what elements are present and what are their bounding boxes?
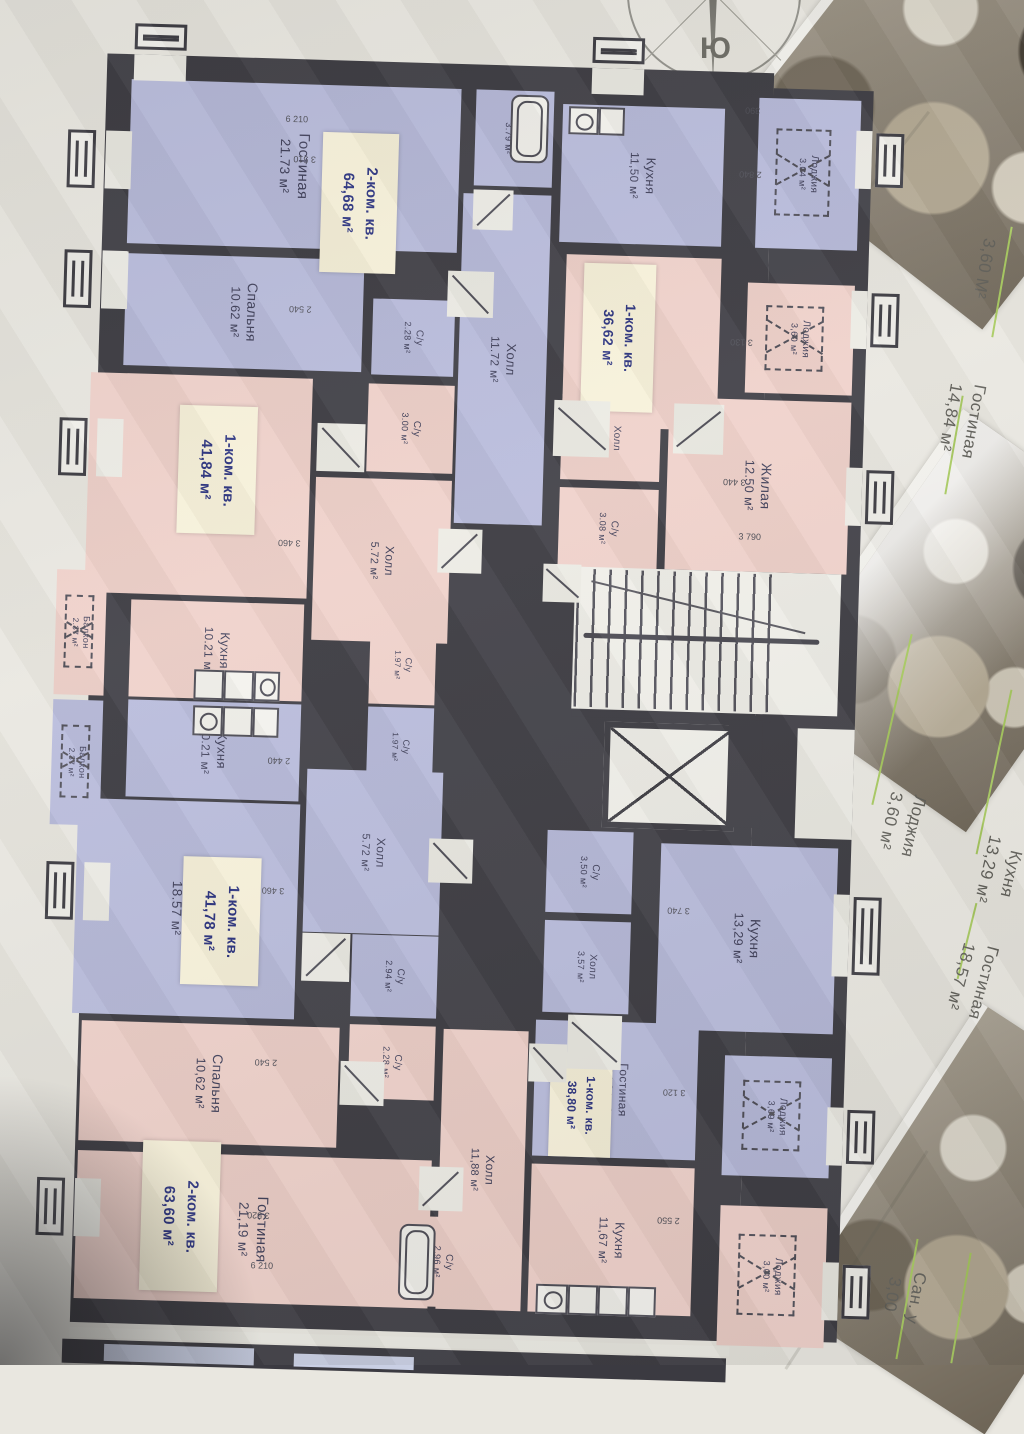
dimension-text: 3 520: [247, 1210, 270, 1221]
room-label: Холл11.72 м²: [486, 335, 519, 383]
stove-icon: [567, 1285, 598, 1316]
window-icon: [592, 37, 645, 65]
room-label: С/у3.08 м²: [595, 512, 621, 545]
apartment-label-text: 1-ком. кв.38,80 м²: [561, 1075, 600, 1135]
room-label: Кухня13,29 м²: [729, 913, 765, 965]
room-Лоджия: Лоджия3,00 м²: [716, 1205, 827, 1348]
window-gap: [831, 894, 849, 976]
dimension-text: 390: [745, 105, 760, 115]
window-gap: [83, 862, 111, 921]
dimension-text: 6 210: [250, 1260, 273, 1271]
bathtub-icon: [509, 94, 549, 163]
room-С/у: С/у3,50 м²: [545, 830, 633, 915]
window-icon: [63, 249, 93, 308]
apartment-label-apt-2k-6360: 2-ком. кв.63,60 м²: [139, 1140, 221, 1292]
room-label: Холл5.72 м²: [358, 833, 389, 872]
room-Кухня: Кухня13,29 м²: [656, 843, 838, 1034]
bathtub-icon: [398, 1224, 436, 1301]
window-gap: [104, 130, 132, 189]
door-swing-icon: [437, 528, 482, 573]
room-Балкон: Балкон2.37 м²: [50, 699, 104, 825]
door-swing-icon: [673, 403, 724, 454]
room-label: Гостиная21.73 м²: [275, 132, 314, 199]
door-swing-icon: [528, 1043, 567, 1082]
floor-plan: Гостиная21.73 м²Спальня10.62 м²Холл11.72…: [34, 49, 879, 1387]
window-icon: [45, 861, 75, 920]
side-label: Гостиная18,57 м²: [939, 937, 1004, 1022]
dimension-text: 3 120: [663, 1087, 686, 1098]
corridor-notch: [795, 728, 855, 840]
door-swing-icon: [301, 933, 350, 982]
window-icon: [58, 417, 88, 476]
balcony-dash-icon: [774, 128, 832, 217]
room-Лоджия: Лоджия3.04 м²: [755, 98, 861, 251]
room-label: С/у3,50 м²: [577, 856, 603, 889]
window-icon: [846, 1110, 876, 1165]
room-Холл: Холл5.72 м²: [303, 769, 444, 936]
room-label: С/у1.97 м²: [391, 650, 414, 680]
apartment-label-apt-1k-3662: 1-ком. кв.36,62 м²: [580, 263, 656, 413]
window-icon: [851, 897, 881, 976]
room-Холл: Холл5.72 м²: [311, 477, 452, 644]
room-label: С/у3.00 м²: [398, 412, 424, 445]
room-label: Гостиная21,19 м²: [233, 1196, 272, 1263]
room-label: Кухня11,67 м²: [594, 1216, 627, 1264]
balcony-dash-icon: [736, 1234, 796, 1317]
balcony-dash-icon: [741, 1080, 801, 1152]
room-Лоджия: Лоджия3,60 м²: [745, 283, 855, 396]
door-swing-icon: [472, 189, 513, 230]
dimension-text: 2 540: [254, 1057, 277, 1068]
window-gap: [850, 291, 868, 349]
window-gap: [855, 131, 873, 189]
dimension-text: 3 440: [723, 477, 746, 488]
sink-icon: [192, 705, 223, 736]
room-С/у: С/у3.00 м²: [366, 383, 455, 474]
room-Холл: Холл3,57 м²: [542, 920, 631, 1015]
window-icon: [841, 1265, 871, 1320]
window-icon: [67, 129, 97, 188]
room-label: Холл11,88 м²: [467, 1148, 498, 1192]
elevator-shaft-wall: [726, 719, 763, 828]
dimension-text: 2 550: [657, 1215, 680, 1226]
side-label: Лоджия3,60 м²: [871, 787, 932, 859]
stove-icon: [627, 1286, 656, 1317]
dimension-text: 3 130: [730, 337, 753, 348]
window-gap: [821, 1262, 839, 1320]
room-label: Холл5.72 м²: [366, 541, 397, 580]
dimension-text: 6 210: [285, 114, 308, 125]
dimension-text: 2 440: [267, 756, 290, 767]
door-swing-icon: [567, 1015, 623, 1071]
door-swing-icon: [447, 271, 494, 318]
apartment-label-text: 2-ком. кв.64,68 м²: [335, 166, 384, 240]
dimension-text: 3 740: [667, 905, 690, 916]
window-gap: [826, 1107, 844, 1165]
stove-icon: [222, 706, 253, 737]
room-С/у: С/у2.94 м²: [350, 934, 438, 1019]
stove-icon: [193, 669, 224, 700]
door-swing-icon: [553, 400, 611, 458]
room-С/у: С/у1.97 м²: [368, 625, 436, 706]
elevator: [602, 722, 737, 832]
room-Балкон: Балкон2.37 м²: [53, 569, 107, 695]
floor-plan-photo: Ю Гостиная12,50 м²3,60 М²Гостиная14,84 м…: [0, 0, 1024, 1365]
side-label-text: Сан. у3,00: [876, 1266, 932, 1326]
stove-icon: [597, 1286, 628, 1317]
room-С/у: С/у1.97 м²: [366, 706, 434, 787]
room-С/у: С/у3.08 м²: [557, 487, 658, 570]
apartment-label-text: 1-ком. кв.36,62 м²: [596, 303, 641, 373]
dimension-text: 3 510: [293, 154, 316, 165]
apartment-label-apt-1k-4178: 1-ком. кв.41,78 м²: [180, 856, 262, 986]
window-icon: [35, 1177, 65, 1236]
sink-icon: [253, 671, 280, 702]
side-label: 3,60 М²: [967, 236, 1024, 304]
stove-icon: [223, 670, 254, 701]
window-gap: [845, 468, 863, 526]
window-icon: [865, 470, 895, 525]
dimension-text: 2 840: [739, 169, 762, 180]
window-icon: [875, 133, 905, 188]
room-Холл: Холл11.72 м²: [454, 193, 552, 525]
door-swing-icon: [339, 1061, 384, 1106]
room-label: Спальня10.62 м²: [226, 283, 262, 343]
sink-icon: [535, 1284, 568, 1315]
window-gap: [134, 54, 187, 82]
balcony-dash-icon: [764, 305, 824, 372]
room-label: С/у1.97 м²: [389, 732, 412, 762]
sink-icon: [568, 106, 599, 135]
dimension-text: 3 790: [738, 531, 761, 542]
window-gap: [73, 1178, 101, 1237]
window-icon: [870, 293, 900, 348]
room-label: Спальня10,62 м²: [191, 1054, 227, 1114]
room-С/у: С/у2.28 м²: [371, 298, 455, 376]
apartment-label-apt-1k-4184: 1-ком. кв.41,84 м²: [176, 405, 258, 535]
room-Гостиная: Гостиная21.73 м²: [127, 79, 462, 253]
room-label: С/у2.28 м²: [400, 321, 426, 354]
room-Лоджия: Лоджия3,69 м²: [721, 1055, 832, 1178]
side-label-text: Лоджия3,60 м²: [871, 787, 932, 859]
room-Гостиная: Гостиная21,19 м²: [74, 1150, 432, 1308]
door-swing-icon: [418, 1166, 463, 1211]
balcony-dash-icon: [63, 594, 94, 668]
apartment-label-text: 1-ком. кв.41,78 м²: [196, 884, 245, 958]
room-label: Холл3,57 м²: [574, 951, 600, 984]
room-label: Кухня10.21 м²: [200, 626, 233, 675]
window-gap: [592, 68, 645, 96]
apartment-label-text: 1-ком. кв.41,84 м²: [193, 433, 242, 507]
dimension-text: 2 540: [289, 304, 312, 315]
apartment-label-apt-2k-6468: 2-ком. кв.64,68 м²: [319, 132, 399, 274]
door-swing-icon: [542, 564, 581, 603]
stove-icon: [598, 107, 625, 136]
window-gap: [96, 418, 124, 477]
room-label: Кухня11,50 м²: [625, 152, 658, 200]
stove-icon: [252, 707, 279, 738]
side-label-text: Гостиная18,57 м²: [939, 937, 1004, 1022]
room-Спальня: Спальня10,62 м²: [78, 1020, 339, 1148]
window-icon: [135, 23, 188, 51]
apartment-label-text: 2-ком. кв.63,60 м²: [156, 1179, 205, 1253]
door-swing-icon: [428, 838, 473, 883]
room-label: С/у2.94 м²: [381, 960, 407, 993]
dimension-text: 3 460: [262, 885, 285, 896]
window-gap: [101, 250, 129, 309]
balcony-dash-icon: [59, 724, 90, 798]
dimension-text: 3 460: [278, 538, 301, 549]
door-swing-icon: [316, 423, 365, 472]
compass-south-label: Ю: [700, 32, 731, 66]
